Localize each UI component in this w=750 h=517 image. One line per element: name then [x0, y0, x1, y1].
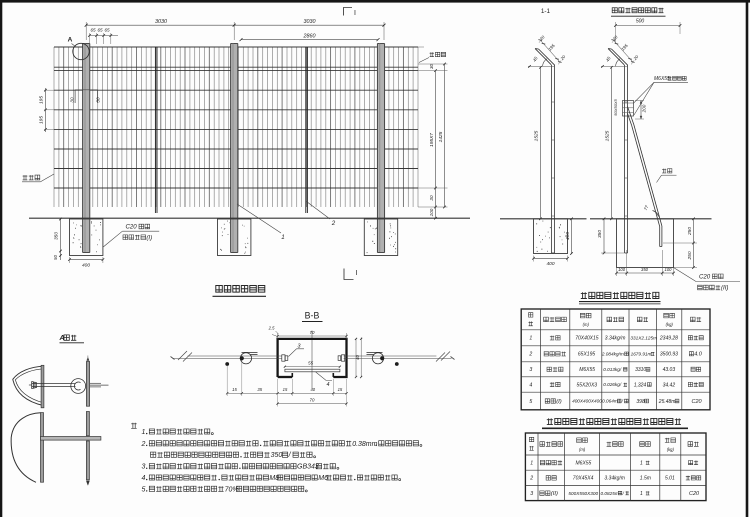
svg-text:1-1: 1-1 [541, 8, 551, 15]
svg-text:0.013kg/: 0.013kg/ [603, 367, 622, 372]
svg-text:195X7: 195X7 [429, 133, 435, 147]
svg-text:2: 2 [331, 220, 336, 227]
svg-text:4.0: 4.0 [694, 352, 703, 358]
svg-text:200: 200 [641, 104, 646, 113]
svg-text:0.38mm: 0.38mm [352, 441, 377, 448]
svg-text:2: 2 [528, 352, 532, 358]
svg-text:3.34kg/m: 3.34kg/m [604, 476, 625, 482]
svg-text:331X2.125m: 331X2.125m [630, 336, 657, 341]
svg-text:3: 3 [529, 367, 532, 373]
svg-text:1: 1 [640, 460, 643, 466]
svg-text:(m): (m) [579, 447, 586, 452]
svg-text:(kg): (kg) [667, 447, 675, 452]
svg-text:70: 70 [310, 330, 315, 335]
svg-text:3500.93: 3500.93 [660, 352, 678, 358]
svg-text:M6: M6 [318, 475, 328, 482]
svg-text:50: 50 [53, 255, 58, 260]
svg-text:50X50X5: 50X50X5 [613, 99, 618, 116]
svg-text:5: 5 [529, 399, 532, 405]
svg-text:35: 35 [257, 387, 262, 392]
svg-text:100: 100 [618, 267, 626, 272]
svg-text:1679.91m: 1679.91m [631, 352, 652, 357]
svg-text:4: 4 [142, 475, 146, 482]
svg-text:350: 350 [271, 452, 283, 459]
svg-text:250: 250 [687, 227, 693, 236]
svg-text:30: 30 [95, 97, 100, 103]
svg-text:M8: M8 [269, 475, 279, 482]
svg-text:A: A [68, 37, 73, 44]
svg-text:M6X55: M6X55 [579, 367, 595, 373]
svg-text:1425: 1425 [438, 131, 444, 142]
svg-text:3030: 3030 [304, 19, 316, 25]
svg-text:30: 30 [429, 64, 434, 69]
svg-text:0.064m: 0.064m [602, 399, 618, 404]
svg-text:(m): (m) [583, 322, 590, 327]
svg-text:250: 250 [687, 251, 693, 260]
svg-text:350: 350 [54, 232, 60, 240]
svg-text:C20: C20 [699, 274, 711, 281]
svg-text:500: 500 [636, 19, 645, 25]
svg-text:2.5: 2.5 [268, 326, 275, 331]
svg-text:0.0825m: 0.0825m [601, 491, 619, 496]
svg-text:B-B: B-B [305, 311, 320, 321]
svg-text:I: I [356, 270, 358, 277]
svg-text:2.084kg/m: 2.084kg/m [601, 352, 624, 357]
svg-text:M6X55: M6X55 [576, 460, 592, 466]
svg-text:400X400X400: 400X400X400 [572, 399, 602, 404]
svg-text:195: 195 [39, 116, 45, 124]
svg-text:(I): (I) [556, 399, 562, 405]
svg-text:2349.28: 2349.28 [659, 336, 678, 342]
svg-text:65: 65 [104, 28, 110, 33]
svg-text:1: 1 [640, 491, 643, 497]
svg-text:350: 350 [641, 267, 649, 272]
svg-text:1,324: 1,324 [634, 382, 647, 388]
svg-text:C20: C20 [692, 399, 703, 405]
svg-text:398: 398 [636, 399, 645, 405]
svg-text:500X550X300: 500X550X300 [568, 491, 598, 496]
svg-text:65: 65 [97, 28, 103, 33]
svg-text:15: 15 [232, 387, 237, 392]
svg-text:34.42: 34.42 [663, 382, 676, 388]
svg-text:I: I [354, 10, 356, 17]
svg-text:1: 1 [142, 429, 146, 436]
svg-text:0.026kg/: 0.026kg/ [603, 382, 622, 387]
svg-text:3: 3 [298, 344, 301, 350]
svg-text:65: 65 [90, 28, 96, 33]
svg-text:15: 15 [338, 387, 343, 392]
svg-text:1: 1 [281, 234, 284, 241]
svg-text:(kg): (kg) [666, 322, 674, 327]
svg-text:55X20X3: 55X20X3 [577, 382, 598, 388]
svg-text:30: 30 [70, 97, 75, 103]
svg-text:3: 3 [142, 464, 146, 471]
svg-text:3: 3 [530, 491, 533, 497]
svg-text:195: 195 [39, 96, 45, 104]
svg-text:100: 100 [429, 208, 434, 216]
svg-text:43.03: 43.03 [663, 367, 676, 373]
svg-text:400: 400 [565, 232, 571, 240]
svg-text:1: 1 [529, 336, 532, 342]
svg-text:3.34kg/m: 3.34kg/m [605, 336, 626, 342]
svg-text:30: 30 [429, 195, 434, 201]
svg-text:1: 1 [530, 460, 533, 466]
svg-text:(II): (II) [551, 491, 558, 497]
svg-text:40: 40 [355, 355, 360, 360]
svg-text:C20: C20 [689, 491, 700, 497]
svg-text:65X195: 65X195 [578, 352, 595, 358]
svg-text:(II): (II) [721, 285, 728, 292]
svg-text:70%: 70% [225, 486, 239, 493]
svg-text:15: 15 [283, 387, 288, 392]
svg-text:3030: 3030 [155, 19, 167, 25]
svg-text:100: 100 [665, 267, 673, 272]
svg-text:2: 2 [529, 476, 533, 482]
svg-text:3310: 3310 [635, 367, 646, 373]
svg-text:4: 4 [327, 382, 330, 388]
svg-text:1525: 1525 [534, 130, 540, 141]
svg-text:A: A [59, 334, 65, 342]
svg-text:(I): (I) [146, 234, 152, 241]
svg-text:C20: C20 [126, 224, 138, 231]
svg-text:2860: 2860 [303, 34, 316, 40]
svg-text:70X45X4: 70X45X4 [573, 476, 594, 482]
svg-text:350: 350 [597, 230, 603, 238]
svg-text:GB343: GB343 [297, 464, 319, 471]
svg-text:5: 5 [142, 486, 146, 493]
svg-text:55: 55 [308, 361, 313, 366]
svg-text:25.48m: 25.48m [658, 399, 676, 405]
svg-text:400: 400 [546, 261, 554, 267]
svg-text:4: 4 [529, 382, 532, 388]
svg-text:70: 70 [310, 397, 315, 402]
svg-text:40: 40 [310, 387, 315, 392]
svg-text:1.5m: 1.5m [640, 476, 651, 482]
svg-text:5.01: 5.01 [665, 476, 675, 482]
svg-text:M6X55: M6X55 [654, 76, 670, 82]
svg-text:2: 2 [141, 441, 146, 448]
svg-text:400: 400 [82, 263, 90, 269]
svg-text:1525: 1525 [605, 130, 611, 141]
svg-text:70X40X15: 70X40X15 [575, 336, 599, 342]
